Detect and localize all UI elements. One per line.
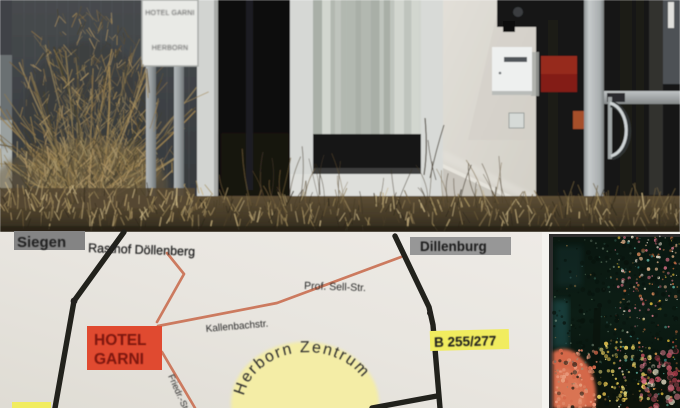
svg-text:GARNI: GARNI <box>94 351 144 368</box>
svg-text:Prof. Sell-Str.: Prof. Sell-Str. <box>304 280 366 294</box>
svg-text:HOTEL GARNI: HOTEL GARNI <box>145 10 194 17</box>
svg-text:B 255/277: B 255/277 <box>434 333 497 350</box>
svg-text:HOTEL: HOTEL <box>94 332 147 349</box>
svg-text:Siegen: Siegen <box>17 234 66 251</box>
svg-text:HERBORN: HERBORN <box>152 45 188 52</box>
svg-text:Dillenburg: Dillenburg <box>420 239 487 254</box>
